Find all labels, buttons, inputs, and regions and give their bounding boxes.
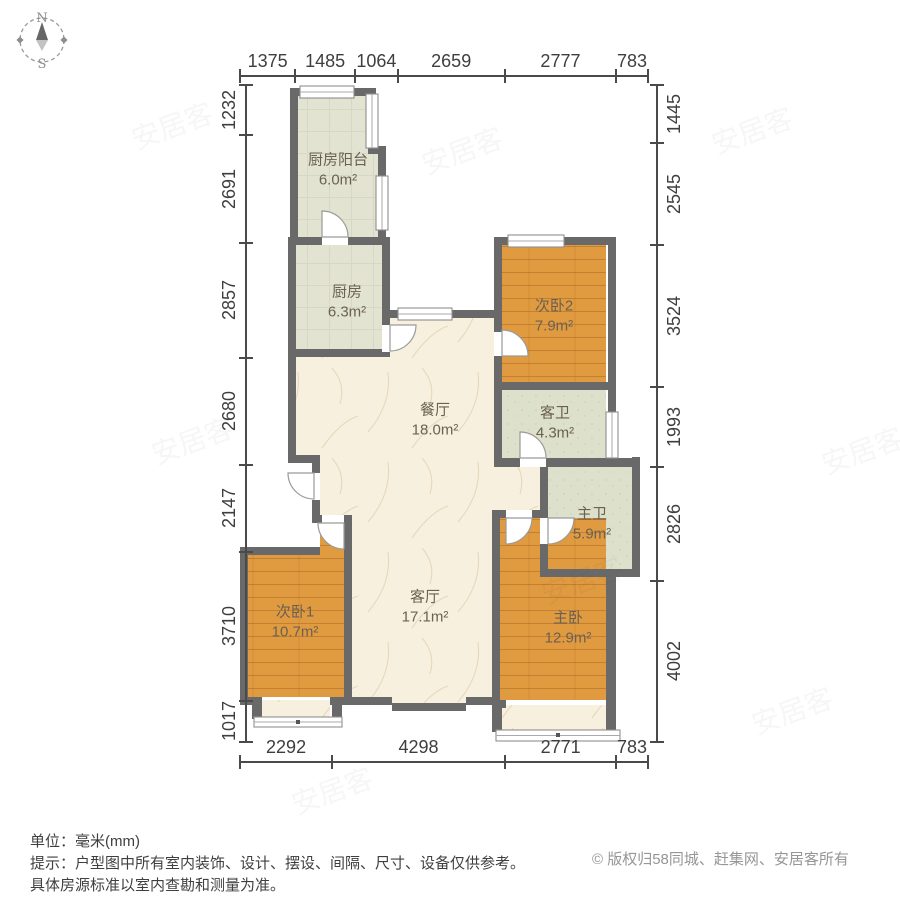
tip-note-line1: 提示：户型图中所有室内装饰、设计、摆设、间隔、尺寸、设备仅供参考。 <box>30 852 525 873</box>
wall-segment <box>344 515 352 705</box>
room-label-bedroom2: 次卧27.9m² <box>535 297 573 336</box>
wall-segment <box>312 515 322 523</box>
dimension-tick <box>647 755 649 769</box>
room-area: 4.3m² <box>536 423 574 443</box>
wall-segment <box>492 510 506 518</box>
door-threshold <box>494 332 502 356</box>
floorplan-page: N S <box>0 0 900 906</box>
dimension-tick <box>650 580 664 582</box>
dimension-label: 3710 <box>220 606 238 646</box>
window <box>300 86 354 98</box>
room-name: 主卧 <box>545 609 592 629</box>
wall-segment <box>288 455 320 463</box>
dimension-tick <box>650 466 664 468</box>
door-threshold <box>506 510 532 518</box>
dimension-line <box>240 75 648 77</box>
dimension-label: 1375 <box>248 52 288 70</box>
dimension-tick <box>239 134 253 136</box>
dimension-label: 1064 <box>356 52 396 70</box>
room-name: 次卧2 <box>535 297 573 317</box>
room-label-kitchen-balcony: 厨房阳台6.0m² <box>308 151 368 190</box>
room-area: 10.7m² <box>272 622 319 642</box>
wall-segment <box>348 237 390 245</box>
room-name: 厨房阳台 <box>308 151 368 171</box>
wall-segment <box>288 349 390 357</box>
room-label-kitchen: 厨房6.3m² <box>328 283 366 322</box>
dimension-label: 2771 <box>541 738 581 756</box>
room-name: 主卫 <box>573 505 611 525</box>
wall-segment <box>632 457 640 577</box>
dimension-label: 2777 <box>540 52 580 70</box>
dimension-label: 1993 <box>665 407 683 447</box>
room-label-living-room: 客厅17.1m² <box>402 588 449 627</box>
wall-segment <box>252 697 262 719</box>
room-area: 5.9m² <box>573 524 611 544</box>
wall-segment <box>494 356 502 467</box>
window <box>606 412 618 458</box>
floor-living-recess <box>392 692 466 703</box>
dimension-label: 3524 <box>665 296 683 336</box>
dimension-label: 2147 <box>220 488 238 528</box>
room-label-master-bathroom: 主卫5.9m² <box>573 505 611 544</box>
floor-dining <box>296 357 390 463</box>
dimension-tick <box>650 244 664 246</box>
floor-bay2 <box>502 705 606 730</box>
room-label-guest-bathroom: 客卫4.3m² <box>536 404 574 443</box>
room-name: 餐厅 <box>412 401 459 421</box>
dimension-tick <box>239 551 253 553</box>
dimension-label: 1017 <box>220 701 238 741</box>
wall-segment <box>332 697 342 719</box>
door-threshold <box>322 237 348 245</box>
dimension-label: 4002 <box>665 641 683 681</box>
dimension-tick <box>239 464 253 466</box>
room-name: 次卧1 <box>272 603 319 623</box>
unit-note: 单位：毫米(mm) <box>30 830 140 851</box>
wall-segment <box>540 467 548 518</box>
wall-segment <box>312 500 320 515</box>
wall-segment <box>352 697 392 705</box>
dimension-label: 2857 <box>220 280 238 320</box>
dimension-line <box>656 85 658 742</box>
wall-segment <box>290 88 298 245</box>
dimension-tick <box>239 741 253 743</box>
dimension-tick <box>239 69 241 83</box>
dimension-tick <box>615 755 617 769</box>
entry-door <box>288 473 314 499</box>
room-label-master-bedroom: 主卧12.9m² <box>545 609 592 648</box>
dimension-label: 4298 <box>398 738 438 756</box>
dimension-label: 2680 <box>220 391 238 431</box>
wall-segment <box>312 463 320 473</box>
floor-hall <box>494 463 540 518</box>
dimension-tick <box>239 84 253 86</box>
wall-segment <box>392 703 466 711</box>
wall-segment <box>494 382 616 390</box>
dimension-tick <box>397 69 399 83</box>
dimension-label: 783 <box>617 52 647 70</box>
dimension-tick <box>650 741 664 743</box>
dimension-tick <box>294 69 296 83</box>
door-threshold <box>520 458 546 467</box>
floor-bay1 <box>262 700 330 717</box>
door-threshold <box>540 518 548 544</box>
dimension-label: 1445 <box>665 94 683 134</box>
bay-window <box>254 717 342 727</box>
room-name: 客厅 <box>402 588 449 608</box>
floor-hall <box>320 463 494 515</box>
room-area: 6.3m² <box>328 302 366 322</box>
dimension-label: 783 <box>617 738 647 756</box>
tip-note-line2: 具体房源标准以室内查勘和测量为准。 <box>30 874 285 895</box>
wall-segment <box>382 245 390 325</box>
dimension-label: 2545 <box>665 174 683 214</box>
room-area: 12.9m² <box>545 628 592 648</box>
dimension-tick <box>615 69 617 83</box>
dimension-tick <box>650 84 664 86</box>
door-threshold <box>382 325 390 352</box>
room-area: 6.0m² <box>308 170 368 190</box>
dimension-tick <box>331 755 333 769</box>
door-threshold <box>322 515 344 523</box>
dimension-tick <box>650 142 664 144</box>
wall-segment <box>492 510 500 705</box>
dimension-line <box>245 85 247 742</box>
dimension-tick <box>650 386 664 388</box>
dimension-tick <box>504 69 506 83</box>
dimension-label: 2659 <box>431 52 471 70</box>
window <box>366 94 378 148</box>
dimension-label: 2691 <box>220 169 238 209</box>
dimension-tick <box>647 69 649 83</box>
copyright-note: © 版权归58同城、赶集网、安居客所有 <box>592 848 849 869</box>
wall-segment <box>546 458 640 467</box>
dimension-label: 1232 <box>220 90 238 130</box>
window <box>508 235 564 247</box>
wall-segment <box>288 357 296 463</box>
dimension-tick <box>239 357 253 359</box>
window <box>398 308 452 320</box>
wall-segment <box>492 700 502 732</box>
room-area: 17.1m² <box>402 607 449 627</box>
dimension-tick <box>239 700 253 702</box>
room-name: 客卫 <box>536 404 574 424</box>
floor-kitchen-balcony <box>298 94 368 152</box>
wall-segment <box>494 237 502 332</box>
room-label-dining-room: 餐厅18.0m² <box>412 401 459 440</box>
dimension-tick <box>239 242 253 244</box>
wall-segment <box>606 569 616 732</box>
room-label-bedroom1: 次卧110.7m² <box>272 603 319 642</box>
room-area: 18.0m² <box>412 420 459 440</box>
room-area: 7.9m² <box>535 316 573 336</box>
dimension-label: 1485 <box>305 52 345 70</box>
window <box>376 176 388 230</box>
room-name: 厨房 <box>328 283 366 303</box>
dimension-label: 2826 <box>665 504 683 544</box>
dimension-line <box>240 761 648 763</box>
wall-segment <box>540 569 640 577</box>
wall-segment <box>288 237 296 357</box>
dimension-tick <box>354 69 356 83</box>
dimension-label: 2292 <box>266 738 306 756</box>
dimension-tick <box>504 755 506 769</box>
dimension-tick <box>239 755 241 769</box>
floor-plan <box>0 0 900 906</box>
